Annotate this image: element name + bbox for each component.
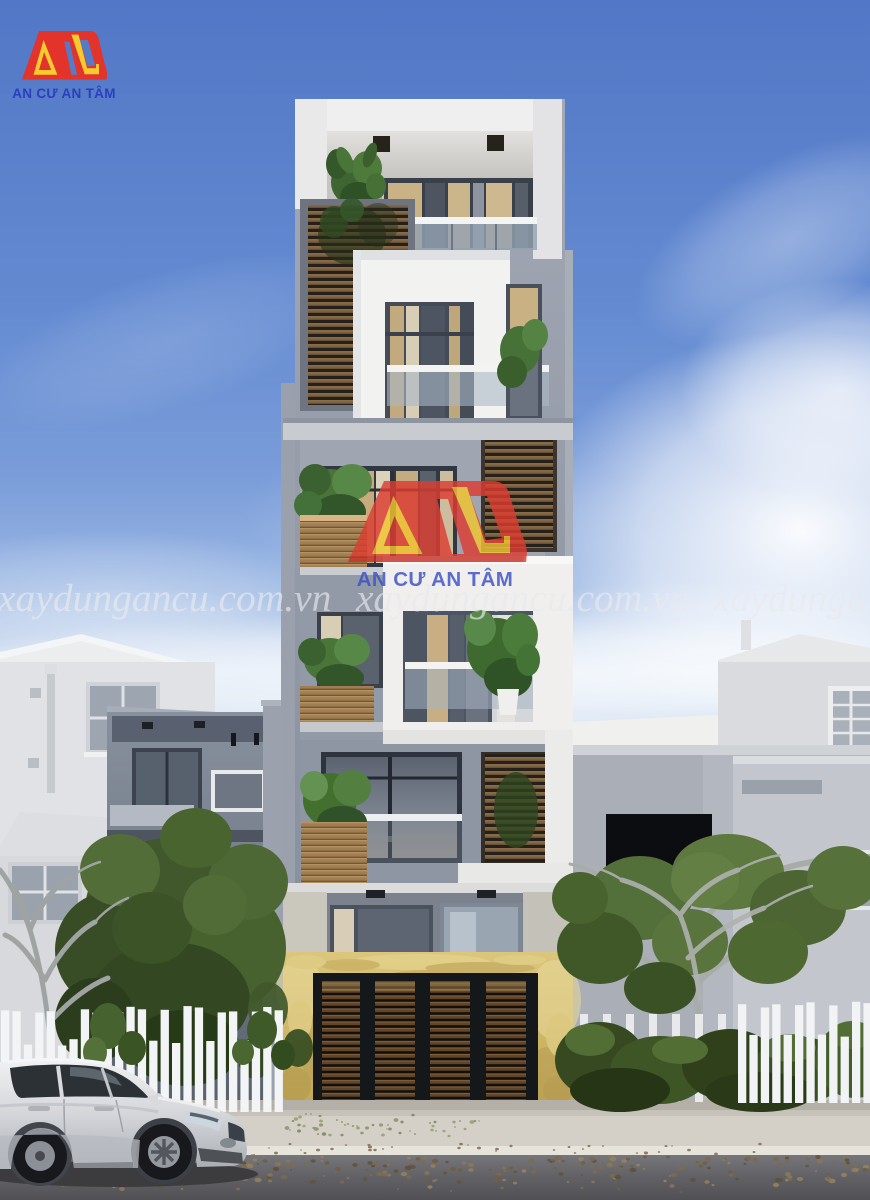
svg-text:xaydunga: xaydunga	[712, 576, 867, 620]
svg-text:AN CƯ AN TÂM: AN CƯ AN TÂM	[357, 567, 514, 591]
svg-text:AN CƯ AN TÂM: AN CƯ AN TÂM	[12, 86, 116, 101]
svg-text:xaydungancu.com.vn: xaydungancu.com.vn	[0, 576, 331, 620]
